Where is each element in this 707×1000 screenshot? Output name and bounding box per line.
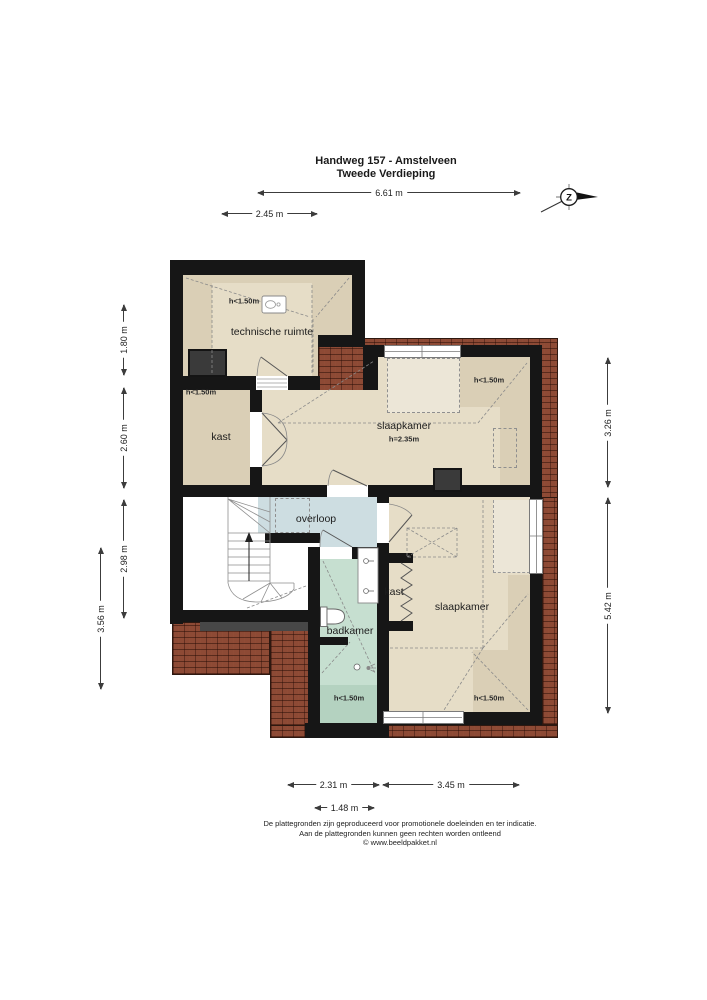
wall — [320, 637, 348, 645]
footer-line-2: Aan de plattegronden kunnen geen rechten… — [195, 829, 605, 839]
wall — [170, 260, 365, 275]
roof-tiles-right-column — [542, 497, 558, 725]
wall — [318, 335, 365, 347]
label-slaapkamer-voor: slaapkamer — [377, 420, 431, 432]
window-slaapkamer-achter-right — [529, 499, 543, 574]
wall — [250, 390, 262, 412]
door-opening-kast-boven — [250, 412, 262, 467]
window-slaapkamer-voor — [384, 345, 461, 358]
label-overloop: overloop — [296, 513, 336, 525]
wall — [389, 621, 413, 631]
dim-left-outer: 3.56 m — [100, 548, 101, 689]
chimney-block — [433, 468, 462, 492]
door-opening-slaapkamer-achter — [377, 503, 389, 543]
label-technische-ruimte: technische ruimte — [231, 326, 313, 338]
wall — [305, 723, 389, 738]
dim-top-left: 2.45 m — [222, 213, 317, 214]
footer-disclaimer: De plattegronden zijn geproduceerd voor … — [195, 819, 605, 848]
floor-badkamer-low — [320, 685, 377, 723]
radiator — [493, 428, 517, 468]
dim-right-lower: 5.42 m — [607, 498, 608, 713]
compass: Z — [541, 184, 598, 212]
dim-label: 5.42 m — [603, 588, 613, 624]
wall — [170, 610, 320, 622]
chimney-block — [188, 349, 227, 377]
dim-left-middle: 2.60 m — [123, 388, 124, 488]
dim-left-lower: 2.98 m — [123, 500, 124, 618]
dormer-area-voor — [387, 358, 460, 413]
wall — [308, 547, 320, 738]
dim-right-upper: 3.26 m — [607, 358, 608, 487]
label-kast-boven: kast — [211, 431, 230, 443]
dim-bottom-right: 3.45 m — [383, 784, 519, 785]
label-badkamer: badkamer — [327, 625, 374, 637]
dim-label: 2.31 m — [316, 780, 352, 790]
dormer-area-achter — [493, 500, 530, 573]
low-ceiling-shade — [473, 650, 530, 712]
wall — [352, 260, 365, 347]
dim-left-upper: 1.80 m — [123, 305, 124, 375]
note-slaapkamer-voor: h<1.50m — [474, 376, 504, 385]
compass-south-letter: Z — [566, 193, 572, 204]
dim-label: 3.56 m — [96, 601, 106, 637]
label-slaapkamer-achter: slaapkamer — [435, 601, 489, 613]
dim-label: 1.48 m — [327, 803, 363, 813]
door-opening-badkamer — [320, 547, 352, 559]
note-slaapkamer-achter: h<1.50m — [474, 694, 504, 703]
dim-label: 3.26 m — [603, 405, 613, 441]
dim-top-total: 6.61 m — [258, 192, 520, 193]
label-kast-klein: kast — [384, 586, 403, 598]
dim-label: 3.45 m — [433, 780, 469, 790]
wall — [389, 553, 413, 563]
dim-label: 2.98 m — [119, 541, 129, 577]
note-badkamer: h<1.50m — [334, 694, 364, 703]
dim-label: 6.61 m — [371, 188, 407, 198]
note-kast-boven: h<1.50m — [186, 388, 216, 397]
footer-line-3: © www.beeldpakket.nl — [195, 838, 605, 848]
wall — [265, 533, 320, 543]
note-technische-ruimte: h<1.50m — [229, 297, 259, 306]
wall — [288, 376, 320, 390]
title-address: Handweg 157 - Amstelveen — [246, 155, 526, 168]
door-opening-technische-ruimte — [256, 376, 288, 390]
dim-label: 2.60 m — [119, 420, 129, 456]
roof-shadow-strip — [200, 622, 312, 631]
floor-overloop-lower — [320, 533, 377, 547]
wall — [377, 543, 389, 738]
wall — [170, 485, 327, 497]
dim-label: 1.80 m — [119, 322, 129, 358]
dim-bottom-left: 2.31 m — [288, 784, 379, 785]
wall — [530, 345, 542, 497]
wall — [170, 260, 183, 624]
window-slaapkamer-achter-bottom — [383, 711, 464, 724]
wall — [352, 547, 377, 559]
dim-bottom-inner: 1.48 m — [315, 807, 374, 808]
plan-title: Handweg 157 - Amstelveen Tweede Verdiepi… — [246, 155, 526, 180]
title-floor: Tweede Verdieping — [246, 168, 526, 181]
ceiling-height-slaapkamer-voor: h=2.35m — [389, 435, 419, 444]
footer-line-1: De plattegronden zijn geproduceerd voor … — [195, 819, 605, 829]
door-opening-slaapkamer-voor — [327, 485, 368, 497]
dim-label: 2.45 m — [252, 209, 288, 219]
